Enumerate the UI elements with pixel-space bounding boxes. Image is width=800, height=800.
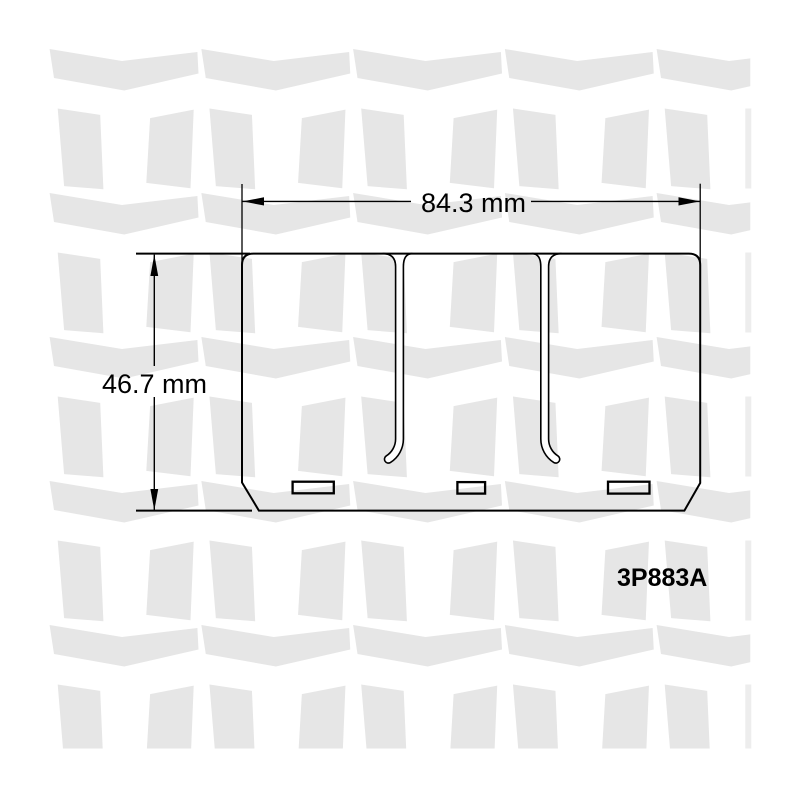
- svg-text:84.3 mm: 84.3 mm: [421, 188, 526, 218]
- svg-text:46.7 mm: 46.7 mm: [102, 369, 207, 399]
- svg-text:3P883A: 3P883A: [617, 564, 707, 592]
